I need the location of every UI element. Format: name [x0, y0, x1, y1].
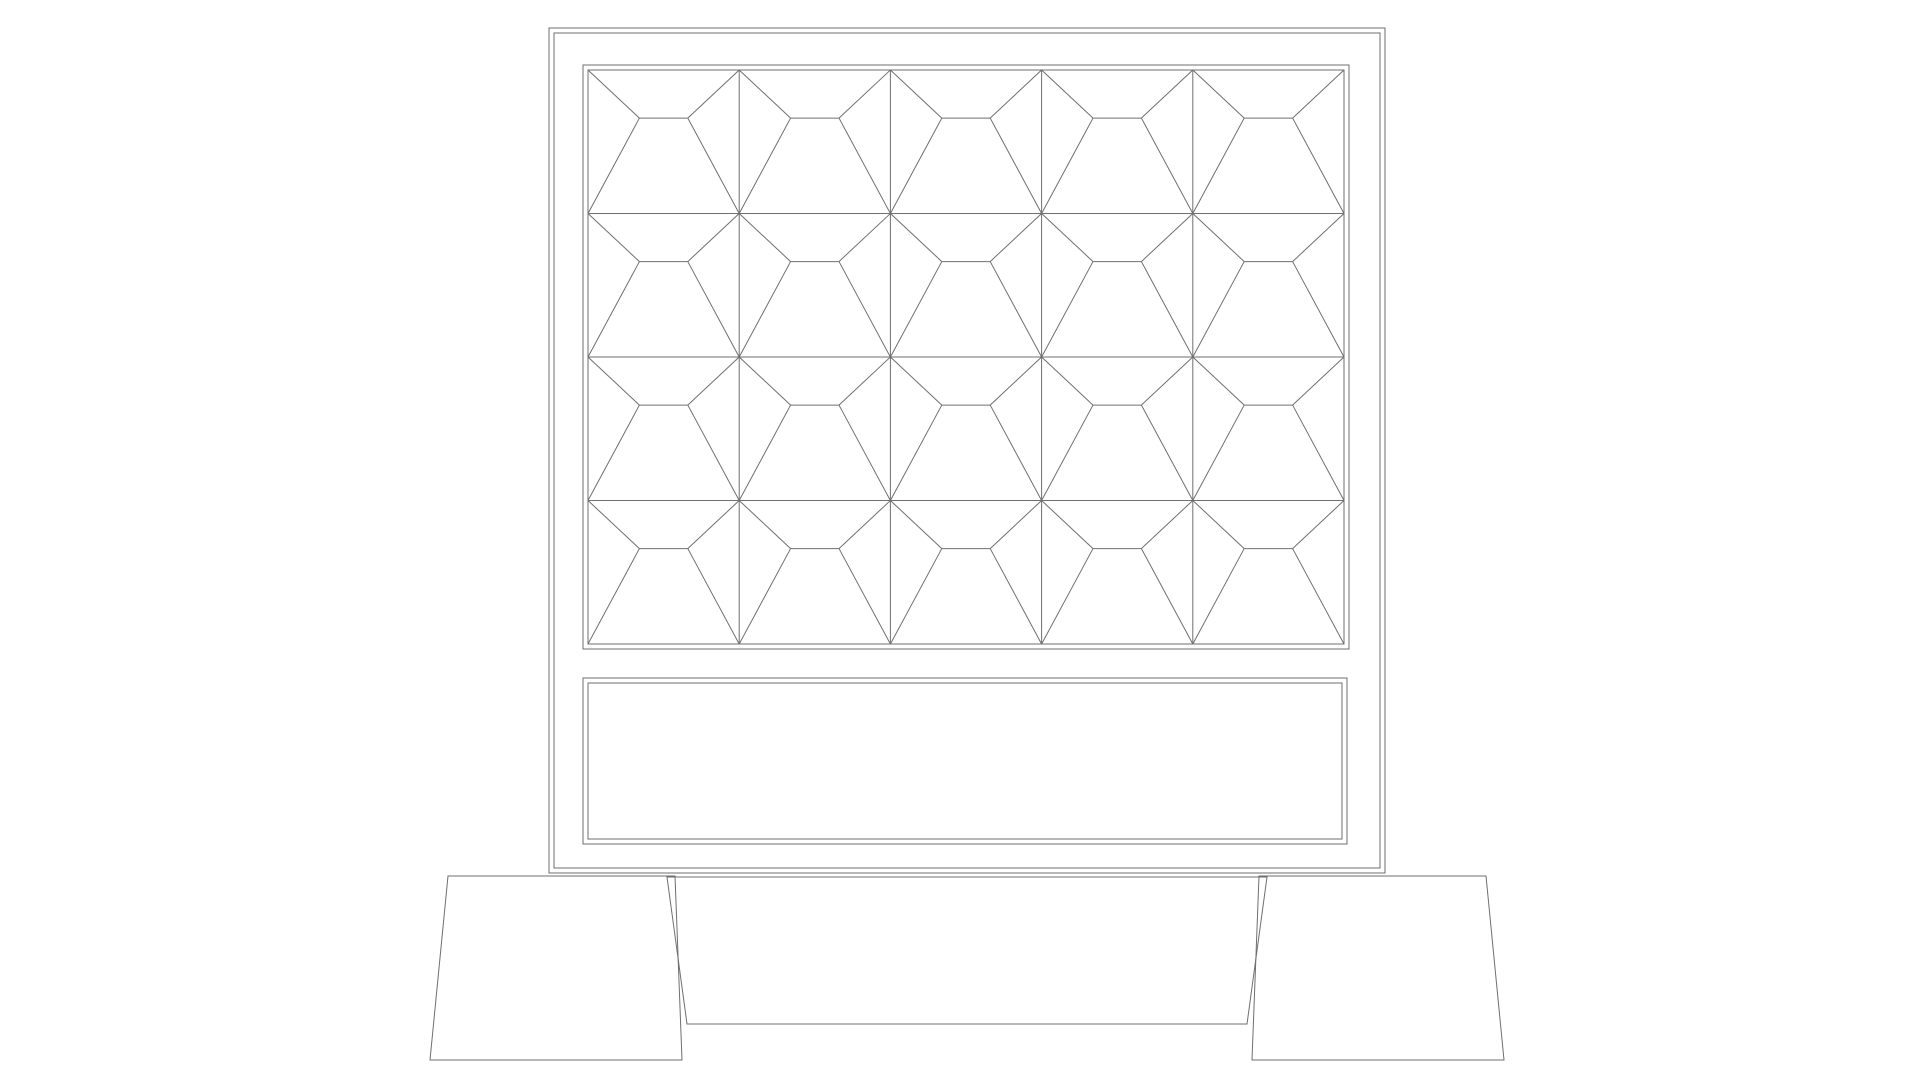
left-leg: [430, 876, 682, 1060]
lower-panel-frame: [583, 678, 1347, 844]
headboard-frame: [549, 28, 1385, 873]
bed-base: [667, 877, 1267, 1024]
bed-headboard-elevation-drawing: [0, 0, 1920, 1080]
drawing-canvas: [0, 0, 1920, 1080]
pattern-grid: [588, 70, 1344, 644]
right-leg: [1252, 876, 1504, 1060]
